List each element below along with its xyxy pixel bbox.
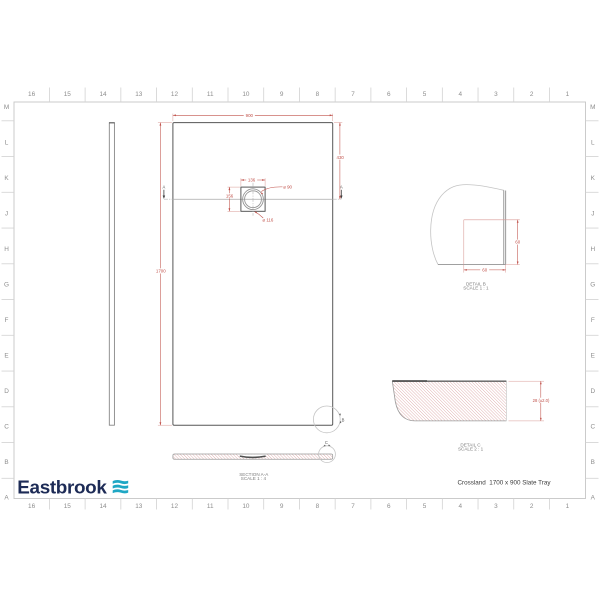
svg-text:E: E	[591, 352, 595, 359]
svg-text:9: 9	[280, 91, 284, 98]
svg-text:D: D	[4, 388, 9, 395]
svg-text:7: 7	[351, 91, 355, 98]
svg-text:K: K	[4, 175, 9, 182]
svg-text:B: B	[591, 459, 595, 466]
svg-text:2: 2	[530, 503, 534, 510]
svg-text:8: 8	[316, 91, 320, 98]
svg-text:SCALE 1 : 1: SCALE 1 : 1	[463, 286, 489, 291]
svg-text:Eastbrook: Eastbrook	[17, 478, 107, 499]
svg-text:E: E	[4, 352, 8, 359]
svg-text:12: 12	[171, 503, 179, 510]
svg-text:3: 3	[494, 503, 498, 510]
svg-text:SCALE 2 : 1: SCALE 2 : 1	[458, 446, 484, 451]
svg-text:12: 12	[171, 91, 179, 98]
svg-text:J: J	[5, 210, 8, 217]
svg-text:14: 14	[99, 91, 107, 98]
svg-text:⌀ 116: ⌀ 116	[262, 217, 273, 222]
svg-text:15: 15	[64, 503, 72, 510]
svg-text:7: 7	[351, 503, 355, 510]
svg-text:C: C	[325, 440, 328, 445]
svg-text:900: 900	[246, 113, 254, 118]
svg-text:14: 14	[99, 503, 107, 510]
svg-text:15: 15	[64, 91, 72, 98]
svg-text:C: C	[590, 423, 595, 430]
svg-text:16: 16	[28, 503, 36, 510]
svg-text:L: L	[591, 139, 595, 146]
svg-text:1: 1	[566, 91, 570, 98]
svg-text:A: A	[163, 185, 166, 190]
svg-text:10: 10	[242, 503, 250, 510]
svg-text:H: H	[4, 246, 9, 253]
svg-text:SCALE 1 : 4: SCALE 1 : 4	[241, 476, 267, 481]
svg-text:9: 9	[280, 503, 284, 510]
svg-text:A: A	[4, 494, 9, 501]
svg-text:2: 2	[530, 91, 534, 98]
svg-text:G: G	[590, 281, 595, 288]
svg-text:136: 136	[248, 178, 256, 183]
svg-text:13: 13	[135, 91, 143, 98]
svg-text:Crossland 1700 x 900 Slate Tr: Crossland 1700 x 900 Slate Tray	[457, 480, 551, 487]
svg-text:L: L	[5, 139, 9, 146]
svg-text:F: F	[591, 317, 595, 324]
svg-text:5: 5	[423, 503, 427, 510]
svg-text:8: 8	[316, 503, 320, 510]
svg-text:H: H	[590, 246, 595, 253]
svg-text:M: M	[590, 104, 595, 111]
svg-text:J: J	[591, 210, 594, 217]
svg-text:A: A	[340, 185, 343, 190]
svg-text:10: 10	[242, 91, 250, 98]
svg-text:6: 6	[387, 503, 391, 510]
svg-text:28 (±2.0): 28 (±2.0)	[533, 398, 550, 403]
svg-text:K: K	[591, 175, 596, 182]
svg-text:F: F	[5, 317, 9, 324]
svg-text:430: 430	[337, 155, 345, 160]
svg-text:60: 60	[515, 240, 520, 245]
svg-text:4: 4	[458, 91, 462, 98]
svg-text:B: B	[4, 459, 8, 466]
svg-text:5: 5	[423, 91, 427, 98]
svg-text:16: 16	[28, 91, 36, 98]
svg-text:C: C	[4, 423, 9, 430]
svg-text:11: 11	[207, 91, 214, 98]
svg-text:M: M	[4, 104, 9, 111]
svg-text:4: 4	[458, 503, 462, 510]
svg-text:11: 11	[207, 503, 214, 510]
svg-text:G: G	[4, 281, 9, 288]
svg-text:A: A	[591, 494, 596, 501]
svg-text:1700: 1700	[156, 269, 166, 274]
svg-text:⌀ 90: ⌀ 90	[283, 184, 292, 189]
svg-text:156: 156	[226, 193, 234, 198]
svg-text:6: 6	[387, 91, 391, 98]
svg-text:60: 60	[482, 268, 487, 273]
svg-text:13: 13	[135, 503, 143, 510]
svg-text:1: 1	[566, 503, 570, 510]
svg-text:B: B	[342, 418, 345, 423]
svg-text:3: 3	[494, 91, 498, 98]
svg-text:D: D	[590, 388, 595, 395]
